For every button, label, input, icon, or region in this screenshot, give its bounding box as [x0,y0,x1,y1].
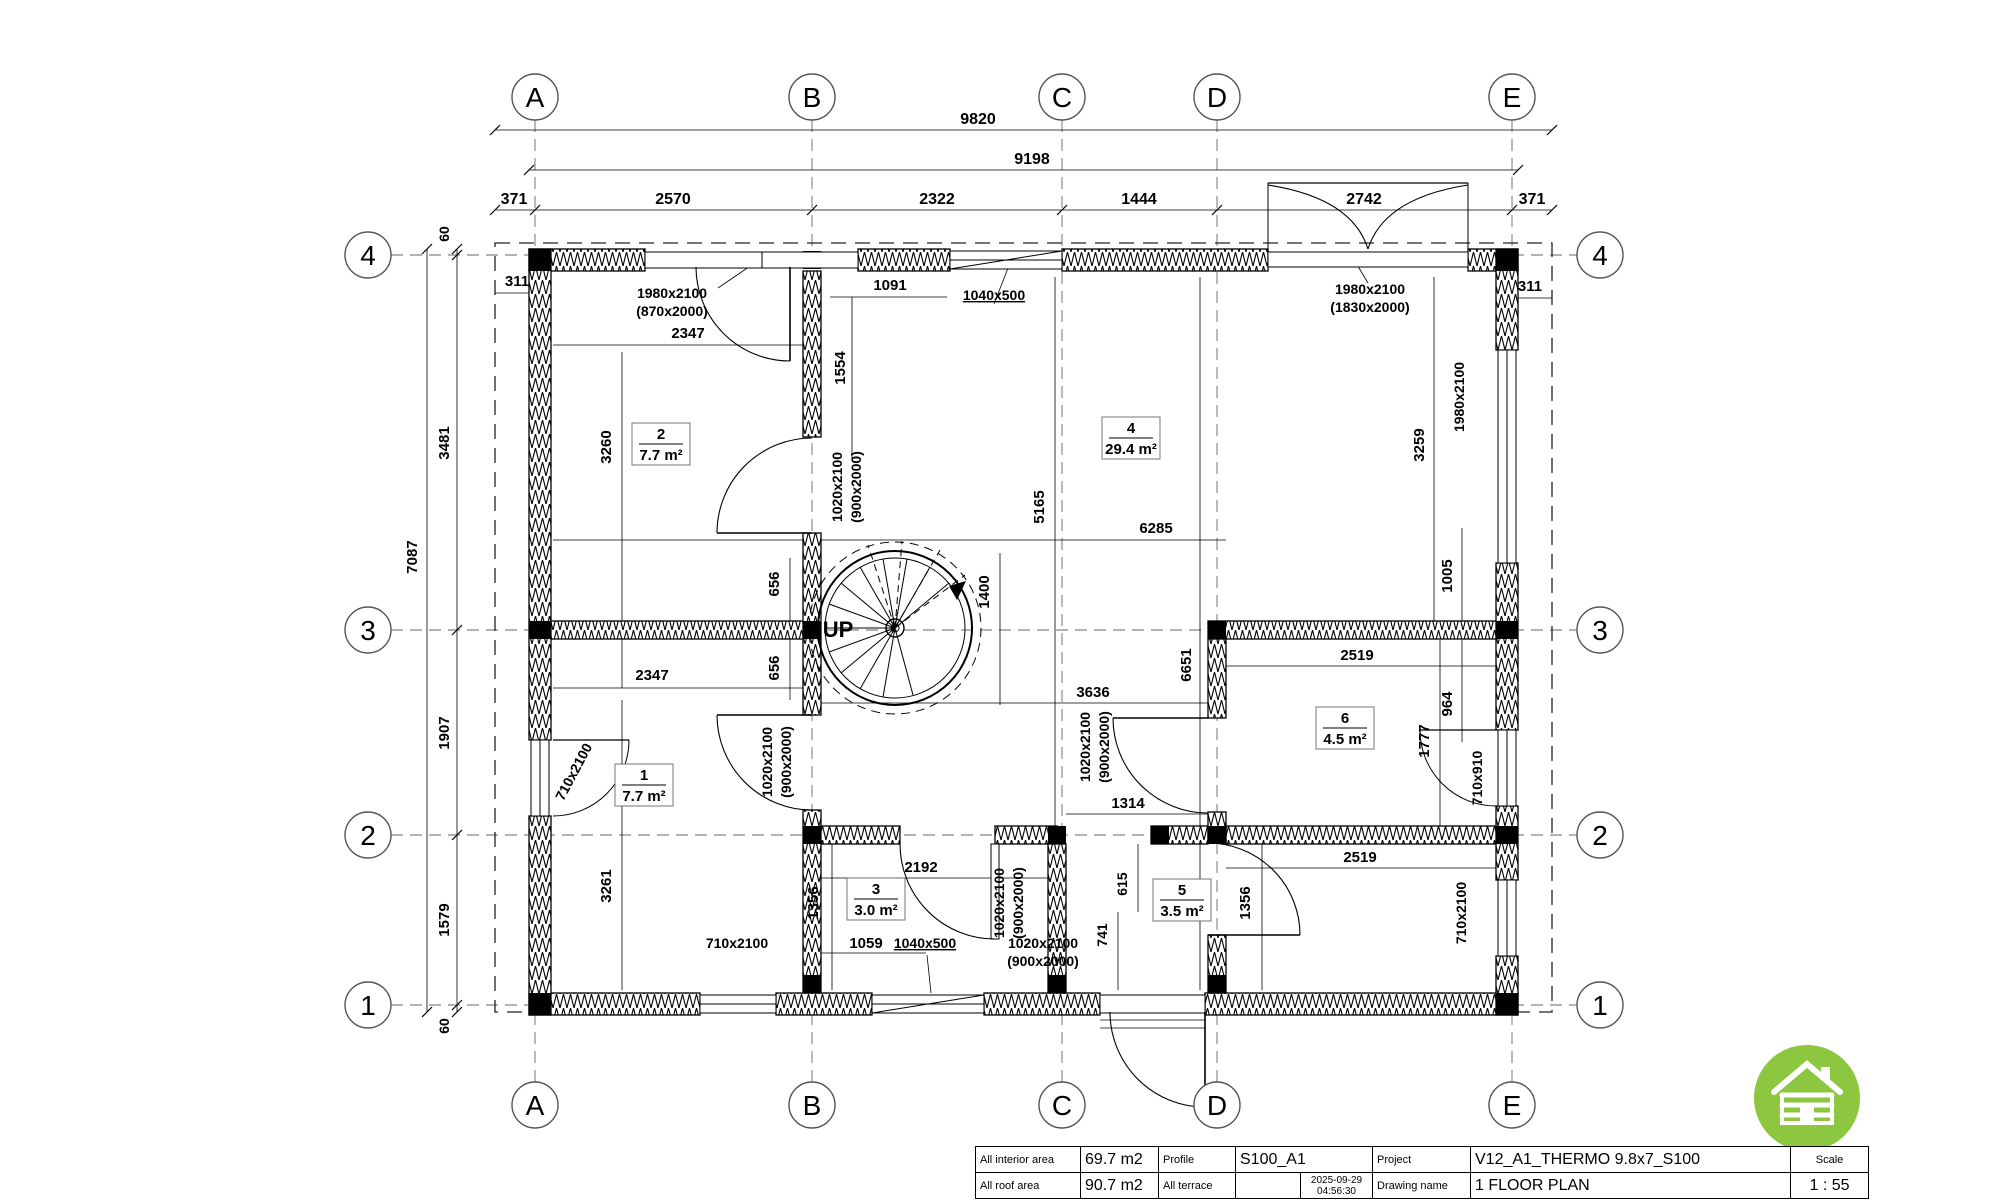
profile-label: Profile [1159,1147,1236,1173]
grid-bubble: 2 [345,812,391,858]
room-number: 1 [640,767,648,784]
dimension-label: 2570 [655,191,691,208]
door-size-label: (900x2000) [1010,867,1026,939]
window-size-label: 710x2100 [552,740,595,803]
room-label: 429.4 m² [1102,417,1160,459]
window-size-label: 1040x500 [894,935,957,951]
title-block: All interior area 69.7 m2 Profile S100_A… [975,1146,1869,1199]
dimension-label: 2322 [919,191,955,208]
dimension-label: 2347 [671,325,704,342]
dimension-label: 9198 [1014,151,1050,168]
grid-bubble-label: B [803,82,822,113]
dimension-label: 60 [436,1018,452,1034]
dimension-label: 2347 [635,667,668,684]
grid-bubble: 2 [1577,812,1623,858]
grid-bubble-label: 2 [1592,820,1608,851]
roof-area-label: All roof area [976,1173,1081,1199]
dimension-label: 1059 [849,935,882,952]
grid-bubble-label: B [803,1090,822,1121]
grid-bubble: A [512,74,558,120]
dimension-label: 6651 [1178,648,1195,681]
door-size-label: 1020x2100 [759,727,775,797]
dimension-label: 1444 [1121,191,1157,208]
grid-bubble-label: 4 [360,240,376,271]
grid-bubble: D [1194,1082,1240,1128]
dimension-label: 964 [1439,691,1456,717]
profile-value: S100_A1 [1236,1147,1373,1173]
dimension-label: 741 [1094,923,1110,947]
grid-bubble-label: 3 [360,615,376,646]
dimension-label: 1579 [436,903,453,936]
dimension-label: 1356 [805,886,822,919]
grid-bubble-label: 2 [360,820,376,851]
dimension-label: 1907 [436,716,453,749]
dimension-label: 656 [766,655,783,680]
grid-bubble: C [1039,1082,1085,1128]
dimension-label: 1005 [1439,559,1456,592]
stair-direction-arrow [949,581,966,600]
dimension-label: 371 [1519,191,1546,208]
dimension-label: 1091 [873,277,906,294]
room-number: 2 [657,426,665,443]
terrace-label: All terrace [1159,1173,1236,1199]
floor-plan-page: ABCDEABCDE43214321 27.7 m²429.4 m²17.7 m… [0,0,2000,1200]
drawing-name-label: Drawing name [1373,1173,1471,1199]
door-size-label: 1980x2100 [637,285,707,301]
grid-bubble: E [1489,1082,1535,1128]
dimension-label: 6285 [1139,520,1172,537]
room-number: 6 [1341,710,1349,727]
dimension-label: 5165 [1031,490,1048,523]
dimension-label: 3260 [598,430,615,463]
grid-bubble: 3 [345,607,391,653]
door-size-label: (900x2000) [1007,953,1079,969]
room-number: 5 [1178,882,1186,899]
door-size-label: (1830x2000) [1330,299,1409,315]
grid-bubble: 1 [1577,982,1623,1028]
brand-logo [1754,1045,1860,1151]
dimension-label: 3261 [598,869,615,902]
dimension-label: 615 [1114,872,1130,896]
door-size-label: (900x2000) [848,451,864,523]
roof-area-value: 90.7 m2 [1081,1173,1159,1199]
interior-area-value: 69.7 m2 [1081,1147,1159,1173]
grid-bubble-label: A [526,1090,545,1121]
door-size-label: 1020x2100 [991,868,1007,938]
window-size-label: 710x2100 [706,935,769,951]
grid-bubble-label: 1 [360,990,376,1021]
dimension-label: 3636 [1076,684,1109,701]
door-size-label: (900x2000) [1096,711,1112,783]
window-size-label: 1040x500 [963,287,1026,303]
room-number: 3 [872,881,880,898]
grid-bubble: 4 [345,232,391,278]
grid-bubble-label: 3 [1592,615,1608,646]
timestamp: 2025-09-29 04:56:30 [1301,1173,1373,1199]
window-size-label: 710x910 [1469,751,1485,806]
dimension-label: 1314 [1111,795,1145,812]
dimension-label: 1554 [832,351,849,385]
grid-bubble: B [789,74,835,120]
room-label: 53.5 m² [1153,879,1211,921]
dimension-label: 371 [501,191,528,208]
room-area: 3.5 m² [1160,903,1203,920]
grid-bubble-label: D [1207,1090,1227,1121]
grid-bubble: E [1489,74,1535,120]
grid-bubble-label: E [1503,82,1522,113]
grid-bubble: 1 [345,982,391,1028]
dimension-label: 2519 [1340,647,1373,664]
room-label: 17.7 m² [615,764,673,806]
grid-bubble-label: E [1503,1090,1522,1121]
window-size-label: 1980x2100 [1451,362,1467,432]
grid-bubble-label: 4 [1592,240,1608,271]
scale-label: Scale [1791,1147,1869,1173]
door-size-label: (900x2000) [778,726,794,798]
dimension-label: 2519 [1343,849,1376,866]
grid-bubble: 4 [1577,232,1623,278]
grid-bubble-label: C [1052,82,1072,113]
room-label: 27.7 m² [632,423,690,465]
window-size-label: 710x2100 [1453,882,1469,945]
date-value: 2025-09-29 [1305,1175,1368,1186]
grid-bubble: B [789,1082,835,1128]
room-number: 4 [1127,420,1136,437]
room-area: 7.7 m² [622,788,665,805]
door-size-label: 1980x2100 [1335,281,1405,297]
dimension-label: 7087 [404,540,421,573]
dimension-label: 2742 [1346,191,1382,208]
dimension-label: 656 [766,571,783,596]
scale-value: 1 : 55 [1791,1173,1869,1199]
dimension-label: 2192 [904,859,937,876]
room-area: 3.0 m² [854,902,897,919]
door-size-label: 1020x2100 [1008,935,1078,951]
project-value: V12_A1_THERMO 9.8x7_S100 [1471,1147,1791,1173]
dimension-label: 1356 [1237,886,1254,919]
grid-bubble: A [512,1082,558,1128]
dimension-label: 1400 [976,575,993,608]
room-label: 64.5 m² [1316,707,1374,749]
dimension-label: 3259 [1411,428,1428,461]
dimension-label: 311 [1518,278,1542,295]
room-area: 7.7 m² [639,447,682,464]
drawing-name-value: 1 FLOOR PLAN [1471,1173,1791,1199]
interior-area-label: All interior area [976,1147,1081,1173]
room-area: 4.5 m² [1323,731,1366,748]
door-size-label: (870x2000) [636,303,708,319]
grid-bubble-label: C [1052,1090,1072,1121]
grid-bubble: 3 [1577,607,1623,653]
grid-bubble: D [1194,74,1240,120]
floor-plan-drawing: ABCDEABCDE43214321 27.7 m²429.4 m²17.7 m… [0,0,2000,1200]
project-label: Project [1373,1147,1471,1173]
dimension-label: 1777 [1416,724,1433,757]
time-value: 04:56:30 [1305,1186,1368,1197]
grid-bubble-label: A [526,82,545,113]
grid-bubble-label: 1 [1592,990,1608,1021]
room-area: 29.4 m² [1105,441,1157,458]
dimension-label: 60 [436,226,452,242]
door-size-label: 1020x2100 [1077,712,1093,782]
dimension-label: 3481 [436,426,453,459]
dimension-label: 9820 [960,111,996,128]
dimension-label: 311 [505,273,529,290]
door-size-label: 1020x2100 [829,452,845,522]
grid-bubble: C [1039,74,1085,120]
grid-bubble-label: D [1207,82,1227,113]
stair-up-label: UP [823,617,854,642]
terrace-value [1236,1173,1301,1199]
room-label: 33.0 m² [847,878,905,920]
